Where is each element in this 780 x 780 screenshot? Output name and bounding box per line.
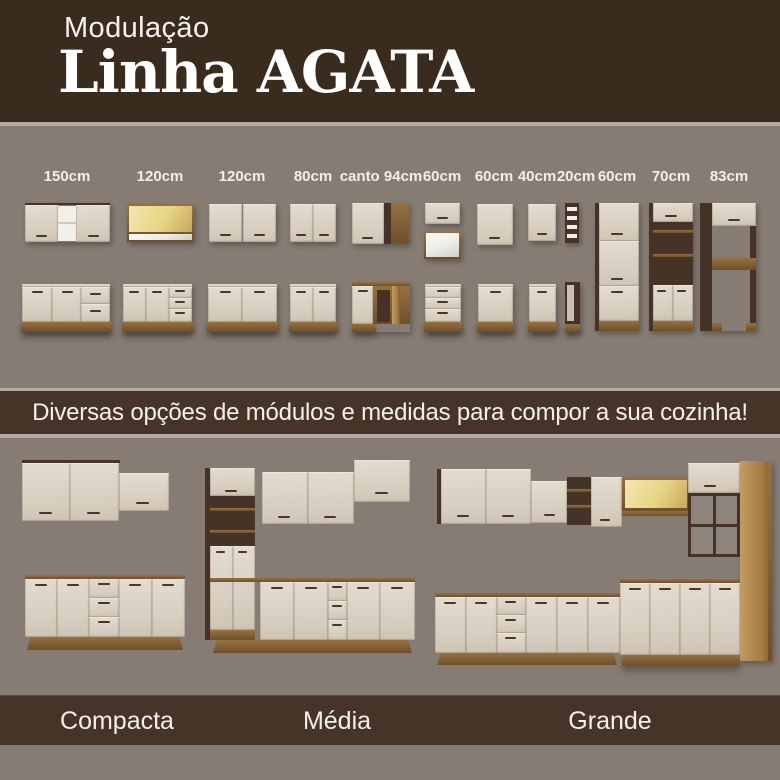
handle	[665, 215, 677, 217]
wood-shelf	[712, 258, 756, 270]
handle	[175, 312, 185, 314]
handle	[505, 601, 516, 603]
handle	[278, 516, 290, 518]
corner-recess	[384, 203, 391, 244]
handle	[319, 291, 329, 293]
module-70cm-tall-open-cabinet	[649, 203, 693, 331]
handle	[90, 310, 101, 312]
handle	[597, 602, 609, 604]
handle	[175, 290, 185, 292]
kitchen-grande	[432, 453, 772, 668]
header: Modulação Linha AGATA	[0, 0, 780, 122]
handle	[704, 485, 716, 487]
handle	[611, 291, 623, 293]
drawer	[89, 617, 119, 637]
handle	[35, 584, 47, 586]
shelf	[567, 216, 577, 220]
base-door	[347, 582, 380, 640]
kitchen-name-compacta: Compacta	[37, 696, 197, 746]
cabinet-door	[712, 203, 756, 226]
handle	[254, 291, 265, 293]
drawer	[328, 620, 347, 640]
narrow-door	[567, 285, 574, 321]
side-strip	[750, 226, 756, 323]
wood-shelf	[622, 511, 690, 516]
base-door	[650, 583, 680, 655]
handle	[152, 291, 162, 293]
page-title: Linha AGATA	[58, 38, 473, 106]
drawer	[169, 298, 192, 309]
module-60cm-flap-wall-cabinet	[425, 203, 460, 224]
handle	[324, 516, 336, 518]
wood-foot	[712, 323, 722, 331]
kitchen-name-media: Média	[257, 696, 417, 746]
handle	[225, 490, 237, 492]
cubby	[691, 527, 713, 554]
cabinet-door	[653, 203, 693, 222]
wood-post	[392, 286, 400, 324]
cabinet-door	[290, 204, 313, 242]
wood-base	[210, 630, 255, 640]
handle	[502, 515, 514, 517]
handle	[175, 301, 185, 303]
drawer	[81, 304, 110, 322]
wood-plinth	[122, 322, 193, 332]
handle	[444, 602, 456, 604]
open-corner-shelves	[567, 477, 591, 525]
handle	[305, 587, 317, 589]
wall-door	[688, 463, 740, 493]
wood-plinth	[352, 324, 376, 332]
kitchen-name-grande: Grande	[530, 696, 690, 746]
module-120cm-base-cabinet	[208, 284, 277, 332]
module-60cm-base-cabinet	[478, 284, 513, 332]
shelf	[567, 234, 577, 238]
wall-door	[354, 460, 410, 502]
drawer	[169, 309, 192, 322]
handle	[254, 234, 265, 236]
module-83cm-fridge-frame	[700, 203, 756, 331]
shelf-line	[58, 222, 76, 224]
drawer	[497, 615, 526, 633]
cabinet-door	[243, 204, 276, 242]
base-door	[380, 582, 415, 640]
base-door	[57, 579, 89, 637]
handle	[600, 519, 610, 521]
wood-plinth	[213, 640, 412, 653]
cabinet-door	[209, 204, 242, 242]
module-60cm-drawer-base	[425, 284, 461, 332]
module-size-label: 150cm	[27, 168, 107, 186]
shelf	[567, 225, 577, 229]
handle	[566, 602, 578, 604]
wood-base	[599, 321, 639, 331]
handle	[332, 624, 342, 626]
handle	[677, 290, 686, 292]
shelf	[567, 207, 577, 211]
wall-door	[119, 473, 169, 511]
handle	[67, 584, 79, 586]
handle	[319, 234, 329, 236]
tall-door	[210, 546, 233, 630]
module-60cm-wall-cabinet	[477, 204, 513, 245]
open-section	[210, 496, 255, 546]
kitchen-media	[205, 450, 415, 660]
glass-panel	[625, 480, 687, 508]
cabinet-door	[425, 203, 460, 224]
handle	[505, 637, 516, 639]
base-door	[588, 597, 620, 653]
drawer	[89, 598, 119, 617]
module-40cm-base-cabinet	[529, 284, 556, 332]
handle	[437, 301, 448, 303]
module-120cm-base-cabinet-drawers	[123, 284, 192, 332]
drawer	[169, 287, 192, 298]
handle	[271, 587, 283, 589]
handle	[544, 514, 555, 516]
module-80cm-base-cabinet	[290, 284, 336, 332]
column-edge	[768, 461, 772, 661]
handle	[375, 492, 388, 494]
handle	[659, 588, 671, 590]
wood-plinth	[565, 324, 580, 332]
base-door	[25, 579, 57, 637]
wood-shelf	[567, 489, 591, 492]
wood-side-panel	[391, 203, 409, 244]
handle	[36, 235, 47, 237]
drawer	[328, 582, 347, 601]
side-panel	[700, 203, 712, 331]
handle	[489, 237, 500, 239]
wood-plinth	[424, 322, 462, 332]
handle	[535, 602, 547, 604]
handle	[39, 512, 52, 514]
handle	[220, 291, 231, 293]
handle	[437, 312, 448, 314]
handle	[98, 621, 110, 623]
drawer	[425, 298, 461, 309]
base-door	[680, 583, 710, 655]
cubby	[716, 527, 737, 554]
module-120cm-wall-cabinet	[209, 204, 276, 242]
handle	[537, 291, 547, 293]
module-80cm-wall-cabinet	[290, 204, 336, 242]
glass-panel	[426, 233, 459, 257]
kitchens-section	[0, 438, 780, 695]
glass-strip	[129, 234, 192, 240]
handle	[32, 291, 43, 293]
drawer	[497, 633, 526, 653]
handle	[611, 278, 623, 280]
cubby	[691, 496, 713, 524]
handle	[391, 587, 403, 589]
drawer	[497, 597, 526, 615]
base-door	[526, 597, 557, 653]
handle	[437, 217, 448, 219]
base-door	[119, 579, 152, 637]
module-20cm-shelf-tower	[565, 203, 579, 243]
base-door	[294, 582, 328, 640]
wood-shelf	[210, 530, 255, 533]
handle	[657, 290, 666, 292]
base-door	[466, 597, 497, 653]
glass-panel	[129, 206, 192, 232]
module-150cm-wall-cabinet	[25, 203, 110, 242]
base-door	[710, 583, 740, 655]
module-60cm-glass-door-cabinet	[424, 231, 461, 259]
wood-plinth	[289, 322, 337, 332]
wall-door	[531, 481, 567, 523]
wood-base	[653, 321, 693, 331]
handle	[332, 586, 342, 588]
base-door	[620, 583, 650, 655]
handle	[216, 551, 225, 553]
handle	[162, 584, 174, 586]
handle	[98, 602, 110, 604]
base-door	[557, 597, 588, 653]
wood-plinth	[437, 653, 617, 665]
wood-plinth	[21, 322, 112, 332]
drawer	[425, 287, 461, 298]
handle	[87, 512, 100, 514]
cabinet-door	[528, 204, 556, 241]
module-size-label: 120cm	[202, 168, 282, 186]
handle	[296, 234, 306, 236]
poster: Modulação Linha AGATA 150cm 120cm 120cm …	[0, 0, 780, 780]
divider-text: Diversas opções de módulos e medidas par…	[32, 399, 748, 427]
handle	[129, 584, 141, 586]
wood-shelf	[567, 505, 591, 508]
wood-plinth	[528, 322, 557, 332]
handle	[475, 602, 487, 604]
module-60cm-tall-cabinet	[595, 203, 639, 331]
handle	[537, 233, 547, 235]
cabinet-door	[313, 204, 336, 242]
handle	[357, 587, 369, 589]
wood-plinth	[622, 655, 740, 666]
handle	[332, 605, 342, 607]
wood-plinth	[477, 322, 514, 332]
wood-shelf	[653, 230, 693, 233]
module-canto94cm-corner-base	[352, 282, 410, 332]
base-door	[260, 582, 294, 640]
base-door	[152, 579, 185, 637]
wood-shelf	[210, 508, 255, 511]
corner-recess	[377, 290, 390, 322]
handle	[728, 219, 740, 221]
drawer	[425, 309, 461, 322]
handle	[296, 291, 306, 293]
handle	[62, 291, 73, 293]
handle	[611, 233, 623, 235]
module-size-label: 120cm	[120, 168, 200, 186]
base-door	[435, 597, 466, 653]
handle	[362, 237, 373, 239]
kitchen-names-band: Compacta Média Grande	[0, 695, 780, 746]
module-120cm-glass-wall-cabinet	[127, 204, 194, 242]
drawer	[81, 287, 110, 304]
tall-door	[233, 546, 255, 630]
handle	[98, 583, 110, 585]
handle	[358, 290, 368, 292]
handle	[136, 502, 149, 504]
handle	[719, 588, 731, 590]
handle	[437, 290, 448, 292]
module-canto94cm-corner-wall-cabinet	[352, 203, 409, 244]
handle	[88, 235, 99, 237]
wood-plinth	[207, 322, 278, 332]
module-40cm-wall-cabinet	[528, 204, 556, 241]
handle	[490, 291, 501, 293]
handle	[238, 551, 247, 553]
cabinet-door	[599, 203, 639, 241]
module-150cm-base-cabinet	[22, 284, 110, 332]
handle	[457, 515, 469, 517]
modules-section: 150cm 120cm 120cm 80cm canto 94cm 60cm 6…	[0, 126, 780, 388]
module-size-label: 83cm	[689, 168, 769, 186]
kitchen-compacta	[22, 458, 192, 658]
handle	[689, 588, 701, 590]
footer-strip	[0, 745, 780, 780]
wood-plinth	[27, 637, 183, 650]
wood-foot	[746, 323, 756, 331]
drawer	[89, 579, 119, 598]
wood-shelf	[653, 254, 693, 257]
module-20cm-narrow-base	[565, 282, 580, 332]
handle	[129, 291, 139, 293]
divider-band: Diversas opções de módulos e medidas par…	[0, 391, 780, 434]
handle	[629, 588, 641, 590]
handle	[90, 293, 101, 295]
handle	[220, 234, 231, 236]
handle	[505, 619, 516, 621]
cubby	[716, 496, 737, 524]
drawer	[328, 601, 347, 620]
